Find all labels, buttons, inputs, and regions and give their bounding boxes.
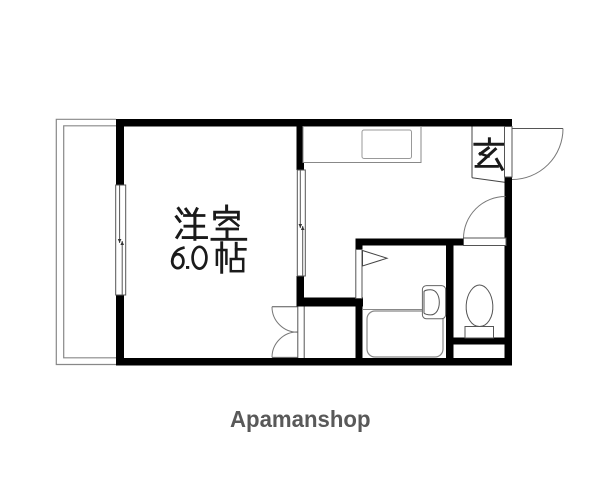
svg-text:Apamanshop: Apamanshop	[230, 406, 371, 432]
